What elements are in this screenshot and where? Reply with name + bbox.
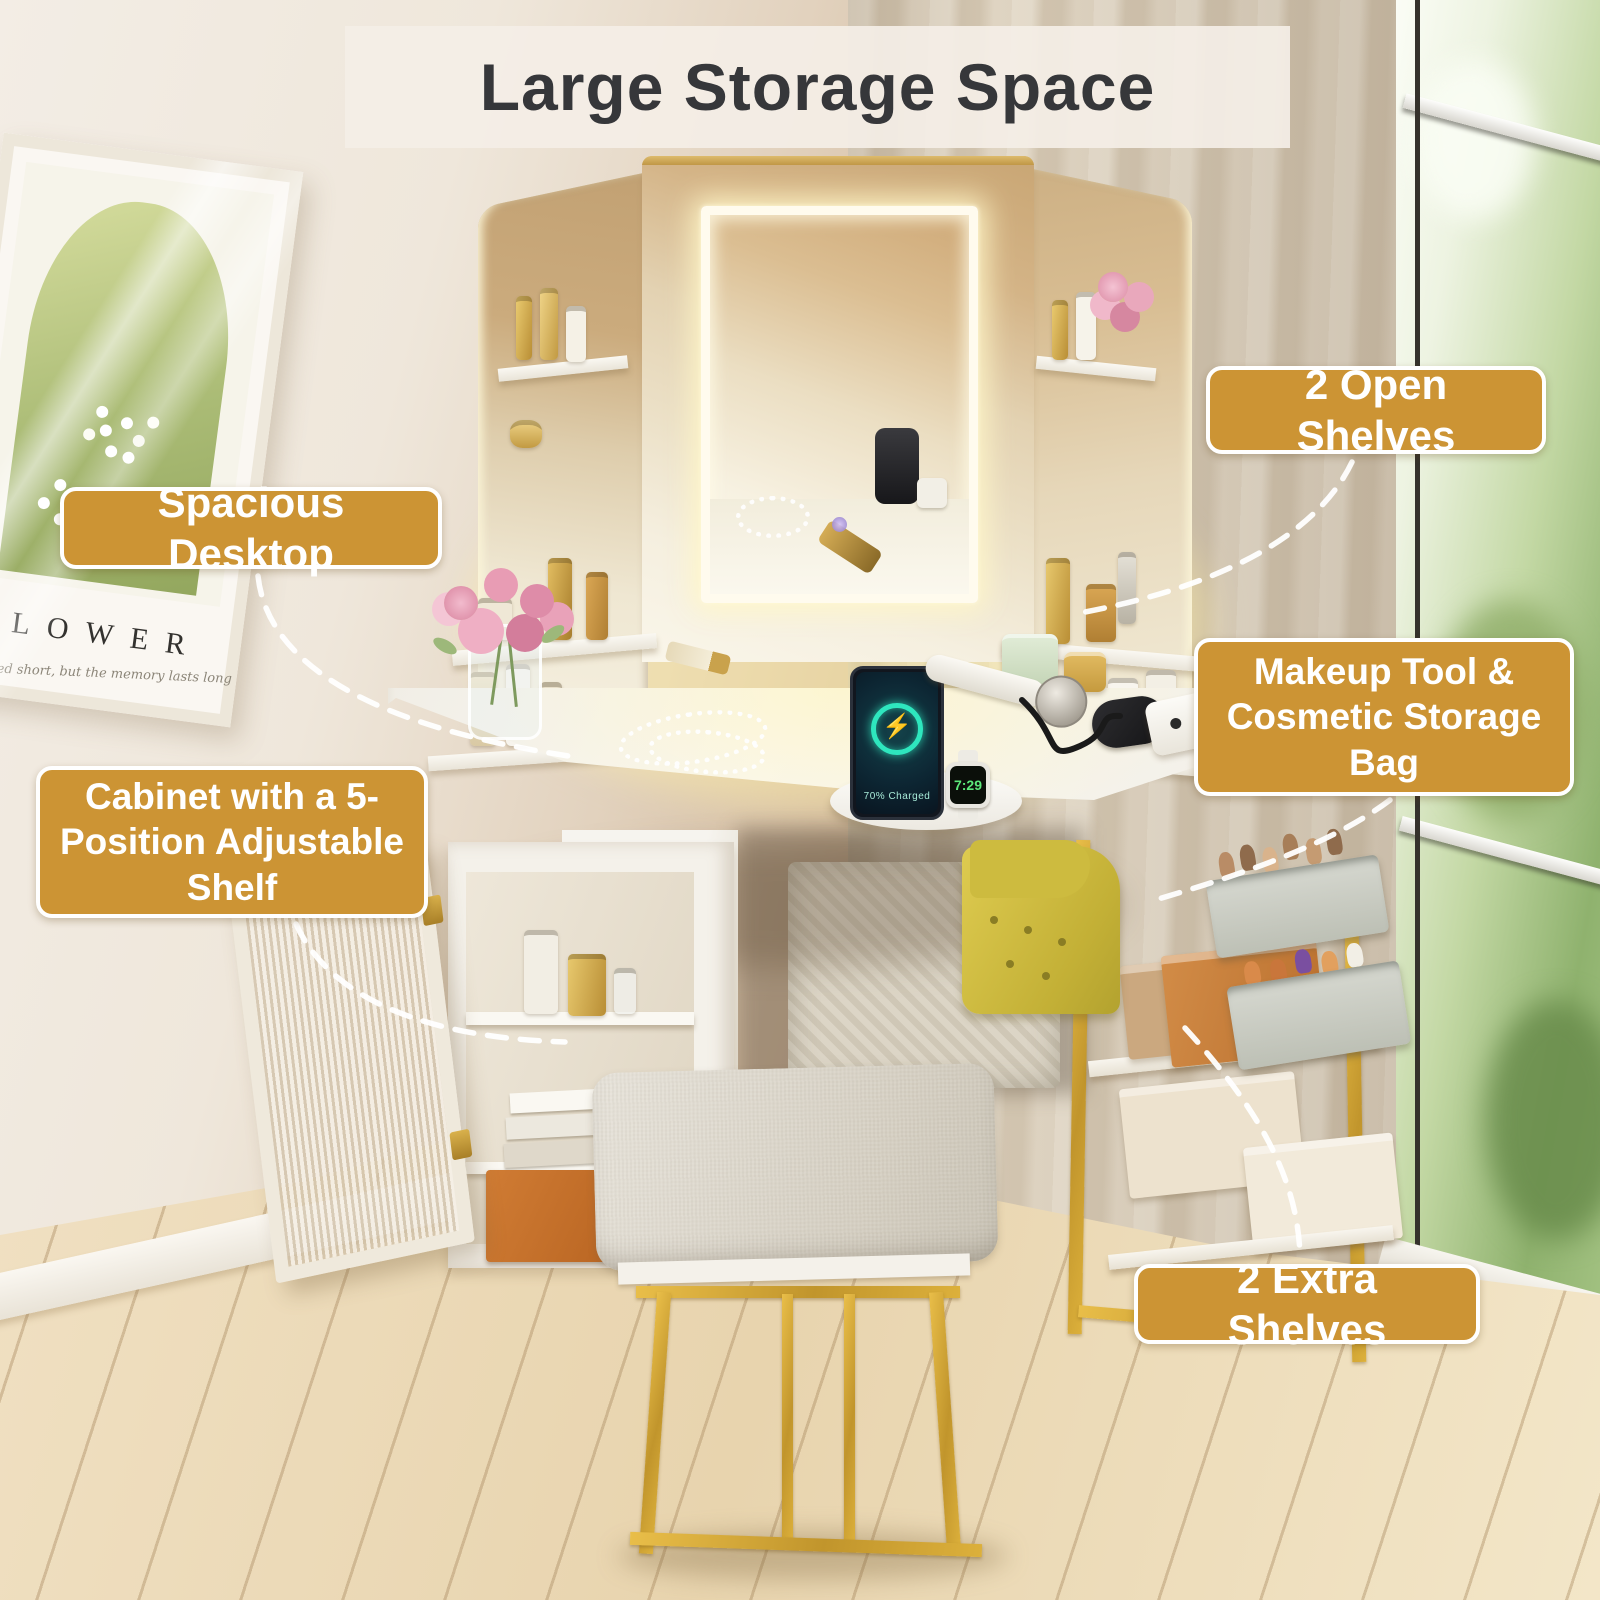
connector-spacious-desktop <box>258 576 575 757</box>
connector-extra-shelves <box>1185 1028 1300 1256</box>
callout-spacious-desktop: Spacious Desktop <box>60 487 442 569</box>
connector-makeup-bag <box>1155 800 1390 900</box>
microphone-cable <box>1022 700 1120 751</box>
title-banner: Large Storage Space <box>345 26 1290 148</box>
callout-makeup-storage-bag: Makeup Tool & Cosmetic Storage Bag <box>1194 638 1574 796</box>
product-infographic: FLOWER remained short, but the memory la… <box>0 0 1600 1600</box>
connector-cabinet <box>296 924 565 1042</box>
page-title: Large Storage Space <box>480 49 1156 125</box>
callout-cabinet-adjustable-shelf: Cabinet with a 5-Position Adjustable She… <box>36 766 428 918</box>
callout-open-shelves: 2 Open Shelves <box>1206 366 1546 454</box>
connector-open-shelves <box>1085 462 1352 612</box>
callout-extra-shelves: 2 Extra Shelves <box>1134 1264 1480 1344</box>
